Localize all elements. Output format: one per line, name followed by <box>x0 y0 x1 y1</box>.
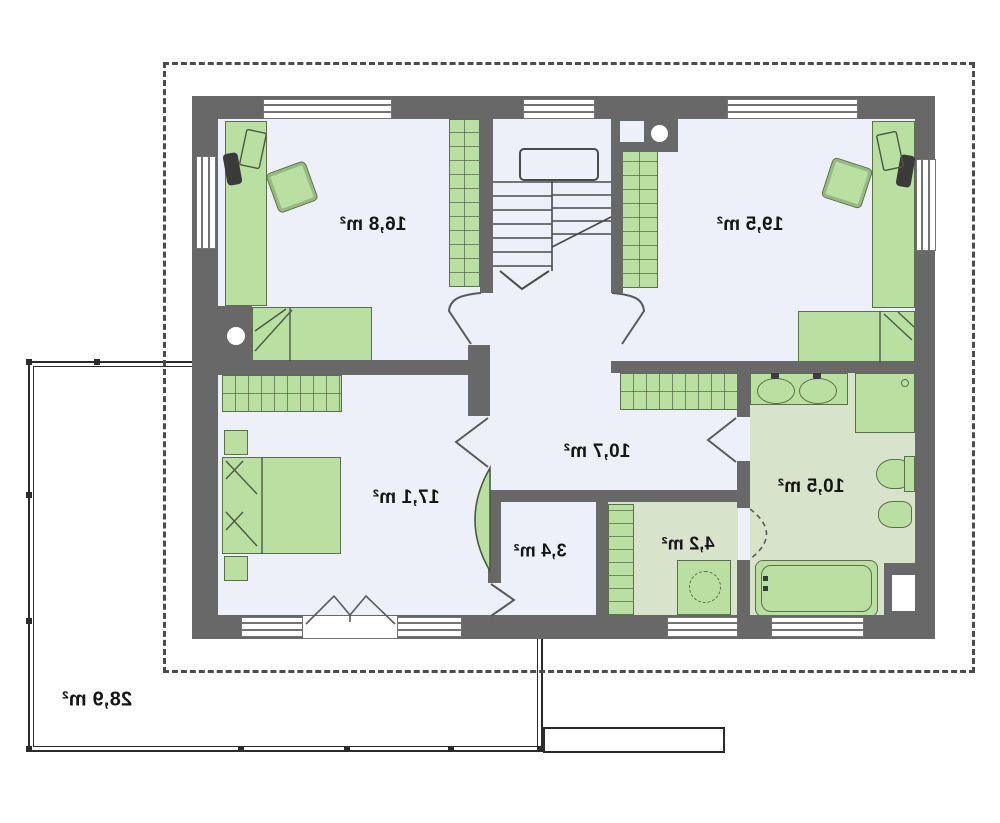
terrace-area-label: 28,9 m² <box>62 689 132 712</box>
shelving <box>608 504 634 615</box>
balcony-door-opening <box>303 616 397 639</box>
bathtub-tap <box>763 576 768 581</box>
room-area-label: 3,4 m² <box>513 541 566 562</box>
coat-rack <box>620 373 738 410</box>
shower-drain <box>901 379 909 387</box>
window <box>196 156 216 249</box>
washing-machine-drum <box>689 571 721 603</box>
wall-room1-bottom <box>192 360 468 375</box>
shaft-niche <box>892 575 915 611</box>
terrace-post <box>238 746 244 752</box>
terrace-post <box>448 746 454 752</box>
wall-bath-left-c <box>737 560 750 615</box>
window <box>397 617 462 637</box>
terrace-post <box>26 746 32 752</box>
window <box>771 617 864 637</box>
wall-closet-utility <box>596 502 608 615</box>
sink-basin <box>757 378 795 404</box>
wall-bath-left-a <box>737 373 750 417</box>
wall-hall-bottom <box>488 490 750 502</box>
wardrobe <box>449 119 480 287</box>
wall-hall-left <box>468 345 490 416</box>
room-area-label: 16,8 m² <box>340 214 407 236</box>
desk-counter <box>225 121 267 306</box>
vent-fan-icon <box>227 327 245 345</box>
room-area-label: 19,5 m² <box>717 214 784 236</box>
bathtub-tap <box>763 586 768 591</box>
window <box>523 99 595 119</box>
bathtub-inner <box>761 565 872 612</box>
bidet <box>878 501 912 528</box>
bed-single <box>798 311 915 363</box>
wardrobe <box>222 375 342 412</box>
nightstand <box>224 556 248 581</box>
terrace-post <box>26 492 32 498</box>
window <box>667 617 738 637</box>
wardrobe <box>620 150 658 288</box>
terrace-post <box>94 359 100 365</box>
room-area-label: 10,7 m² <box>564 441 631 463</box>
nightstand <box>224 430 248 455</box>
chimney-niche <box>620 121 644 142</box>
room-area-label: 17,1 m² <box>373 487 440 509</box>
window <box>241 617 303 637</box>
terrace-post <box>344 746 350 752</box>
exterior-step <box>543 727 725 753</box>
vent-fan-icon <box>651 125 668 142</box>
terrace-post <box>26 618 32 624</box>
room-area-label: 10,5 m² <box>778 476 845 498</box>
desk-counter <box>872 121 915 308</box>
terrace-post <box>26 359 32 365</box>
bed-double <box>222 457 341 554</box>
window <box>263 99 392 119</box>
bed-single <box>252 307 372 361</box>
wall-stair-left <box>480 119 493 293</box>
wall-hall-top-right <box>611 361 935 373</box>
room-area-label: 4,2 m² <box>661 534 714 555</box>
sink-basin <box>799 378 837 404</box>
wall-room3-closet <box>488 502 501 583</box>
window <box>916 159 936 251</box>
window <box>727 99 858 119</box>
toilet-tank <box>904 456 915 492</box>
floor-plan: 16,8 m² 19,5 m² 17,1 m² 10,7 m² 10,5 m² … <box>0 0 1000 823</box>
